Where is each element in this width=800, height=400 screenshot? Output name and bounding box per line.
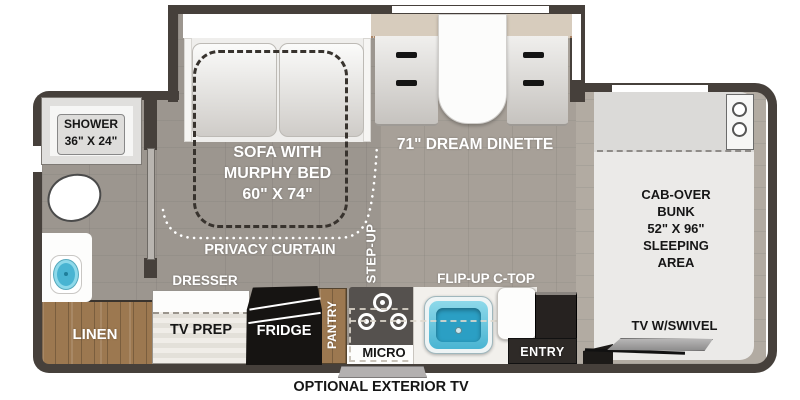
linen-label: LINEN — [60, 326, 130, 343]
cab-over-bunk-label: CAB-OVER BUNK 52" X 96" SLEEPING AREA — [616, 186, 736, 271]
seat-belt-icon — [523, 80, 544, 86]
cup-holder-icon — [732, 122, 747, 137]
stove-burner-dot — [380, 300, 385, 305]
cup-holder-icon — [732, 102, 747, 117]
rv-floorplan: SHOWER 36" X 24" SOFA WITH MURPHY BED 60… — [0, 0, 800, 400]
window-bath-left — [33, 146, 42, 172]
window-cab-top — [612, 85, 708, 92]
sofa-armrest-right — [363, 38, 371, 142]
dinette-label: 71" DREAM DINETTE — [380, 136, 570, 154]
seat-belt-icon — [396, 80, 417, 86]
pantry-label: PANTRY — [325, 296, 339, 354]
wall-bath-divider — [144, 93, 157, 150]
kitchen-sink-basin — [436, 308, 481, 342]
tv-swivel-label: TV W/SWIVEL — [612, 318, 737, 333]
sofa-armrest-left — [184, 38, 192, 142]
vanity-sink-drain — [64, 272, 68, 276]
window-right-mid — [572, 14, 581, 80]
flip-up-countertop — [497, 287, 537, 340]
entry-upper-step — [535, 292, 577, 340]
kitchen-sink-drain — [455, 327, 462, 334]
dinette-table — [438, 14, 507, 124]
flip-up-ctop-label: FLIP-UP C-TOP — [420, 271, 552, 286]
wall-left-mid — [168, 5, 178, 102]
exterior-tv-mount — [338, 366, 427, 378]
micro-label: MICRO — [349, 345, 419, 360]
seat-belt-icon — [396, 52, 417, 58]
privacy-curtain-label: PRIVACY CURTAIN — [190, 242, 350, 258]
seat-belt-icon — [523, 52, 544, 58]
bunk-dashed-line — [597, 150, 751, 152]
shower-label: SHOWER 36" X 24" — [55, 116, 127, 150]
fridge-label: FRIDGE — [248, 323, 320, 339]
step-up-label: STEP-UP — [364, 219, 379, 289]
window-sofa-band — [183, 14, 371, 38]
wall-bath-divider-stub — [144, 258, 157, 278]
tv-swivel — [607, 338, 713, 351]
dresser-label: DRESSER — [165, 273, 245, 288]
exterior-tv-label: OPTIONAL EXTERIOR TV — [281, 379, 481, 395]
bathroom-pocket-door — [147, 148, 155, 260]
sofa-murphy-label: SOFA WITH MURPHY BED 60" X 74" — [200, 142, 355, 205]
entry-label: ENTRY — [510, 345, 575, 359]
tv-prep-label: TV PREP — [152, 322, 250, 338]
window-top-dinette — [392, 6, 549, 13]
